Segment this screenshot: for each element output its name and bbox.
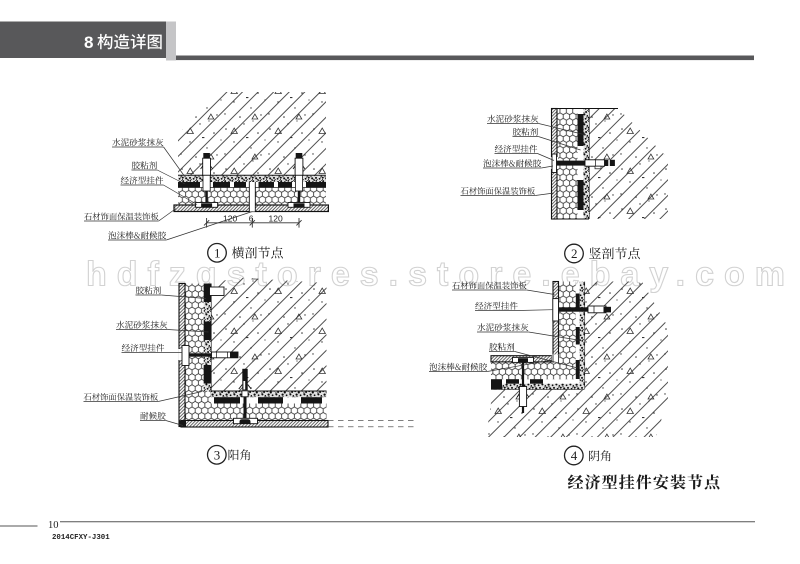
svg-text:2: 2 — [571, 246, 578, 261]
svg-text:10: 10 — [48, 520, 59, 531]
svg-text:4: 4 — [571, 448, 578, 463]
svg-text:8: 8 — [84, 33, 93, 52]
svg-text:6: 6 — [249, 214, 254, 224]
svg-text:2014CFXY-J301: 2014CFXY-J301 — [52, 534, 110, 542]
svg-text:120: 120 — [269, 214, 283, 224]
svg-text:3: 3 — [214, 447, 221, 462]
svg-text:1: 1 — [214, 245, 221, 260]
